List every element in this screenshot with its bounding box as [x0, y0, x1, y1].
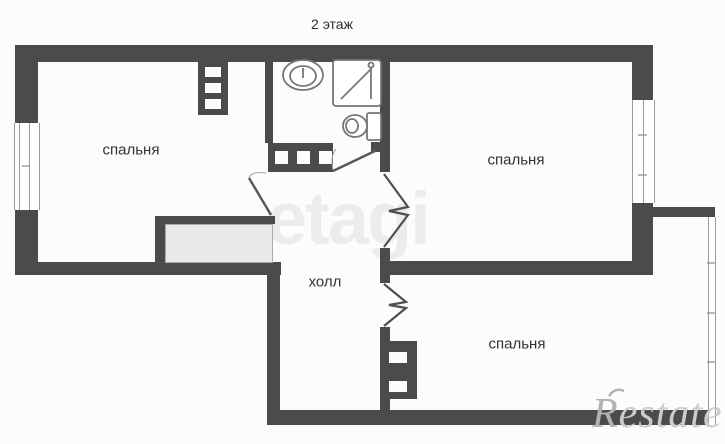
room-label-hall: холл	[309, 274, 342, 291]
wall-right-step	[653, 207, 715, 217]
floor-plan: etagi 2 этаж	[0, 0, 725, 444]
room-label-bedroom-left: спальня	[103, 142, 160, 159]
room-label-bedroom-top-right: спальня	[488, 152, 545, 169]
watermark-etagi: etagi	[266, 176, 429, 261]
toilet-icon	[343, 113, 381, 140]
restate-logo-initial: R	[592, 391, 619, 437]
wall-bathroom-door-stub	[371, 142, 381, 152]
wall-hall-left	[267, 275, 280, 412]
bathroom-door	[332, 149, 377, 171]
window-top-right	[632, 100, 655, 203]
bedroom-bottom-right-door	[384, 284, 406, 326]
sink-icon	[283, 60, 323, 90]
outer-wall-right-upper	[632, 45, 653, 100]
wall-center-upper	[380, 62, 390, 172]
restate-logo: Restate	[592, 390, 723, 438]
outer-wall-top	[15, 45, 653, 62]
wall-center-middle	[380, 248, 390, 283]
room-label-bedroom-bottom-right: спальня	[489, 336, 546, 353]
wall-closet-top	[155, 216, 275, 224]
shower-icon	[333, 60, 381, 106]
built-in-closet	[165, 224, 273, 263]
wall-bedroom-left-bottom	[15, 262, 281, 275]
wall-bedroom-topright-bottom	[386, 261, 653, 275]
outer-wall-left-upper	[15, 45, 38, 123]
window-left	[14, 123, 40, 210]
wall-bathroom-left	[265, 62, 273, 143]
floor-title: 2 этаж	[311, 16, 353, 32]
restate-logo-rest: estate	[619, 391, 723, 437]
wall-closet-left	[155, 216, 165, 272]
